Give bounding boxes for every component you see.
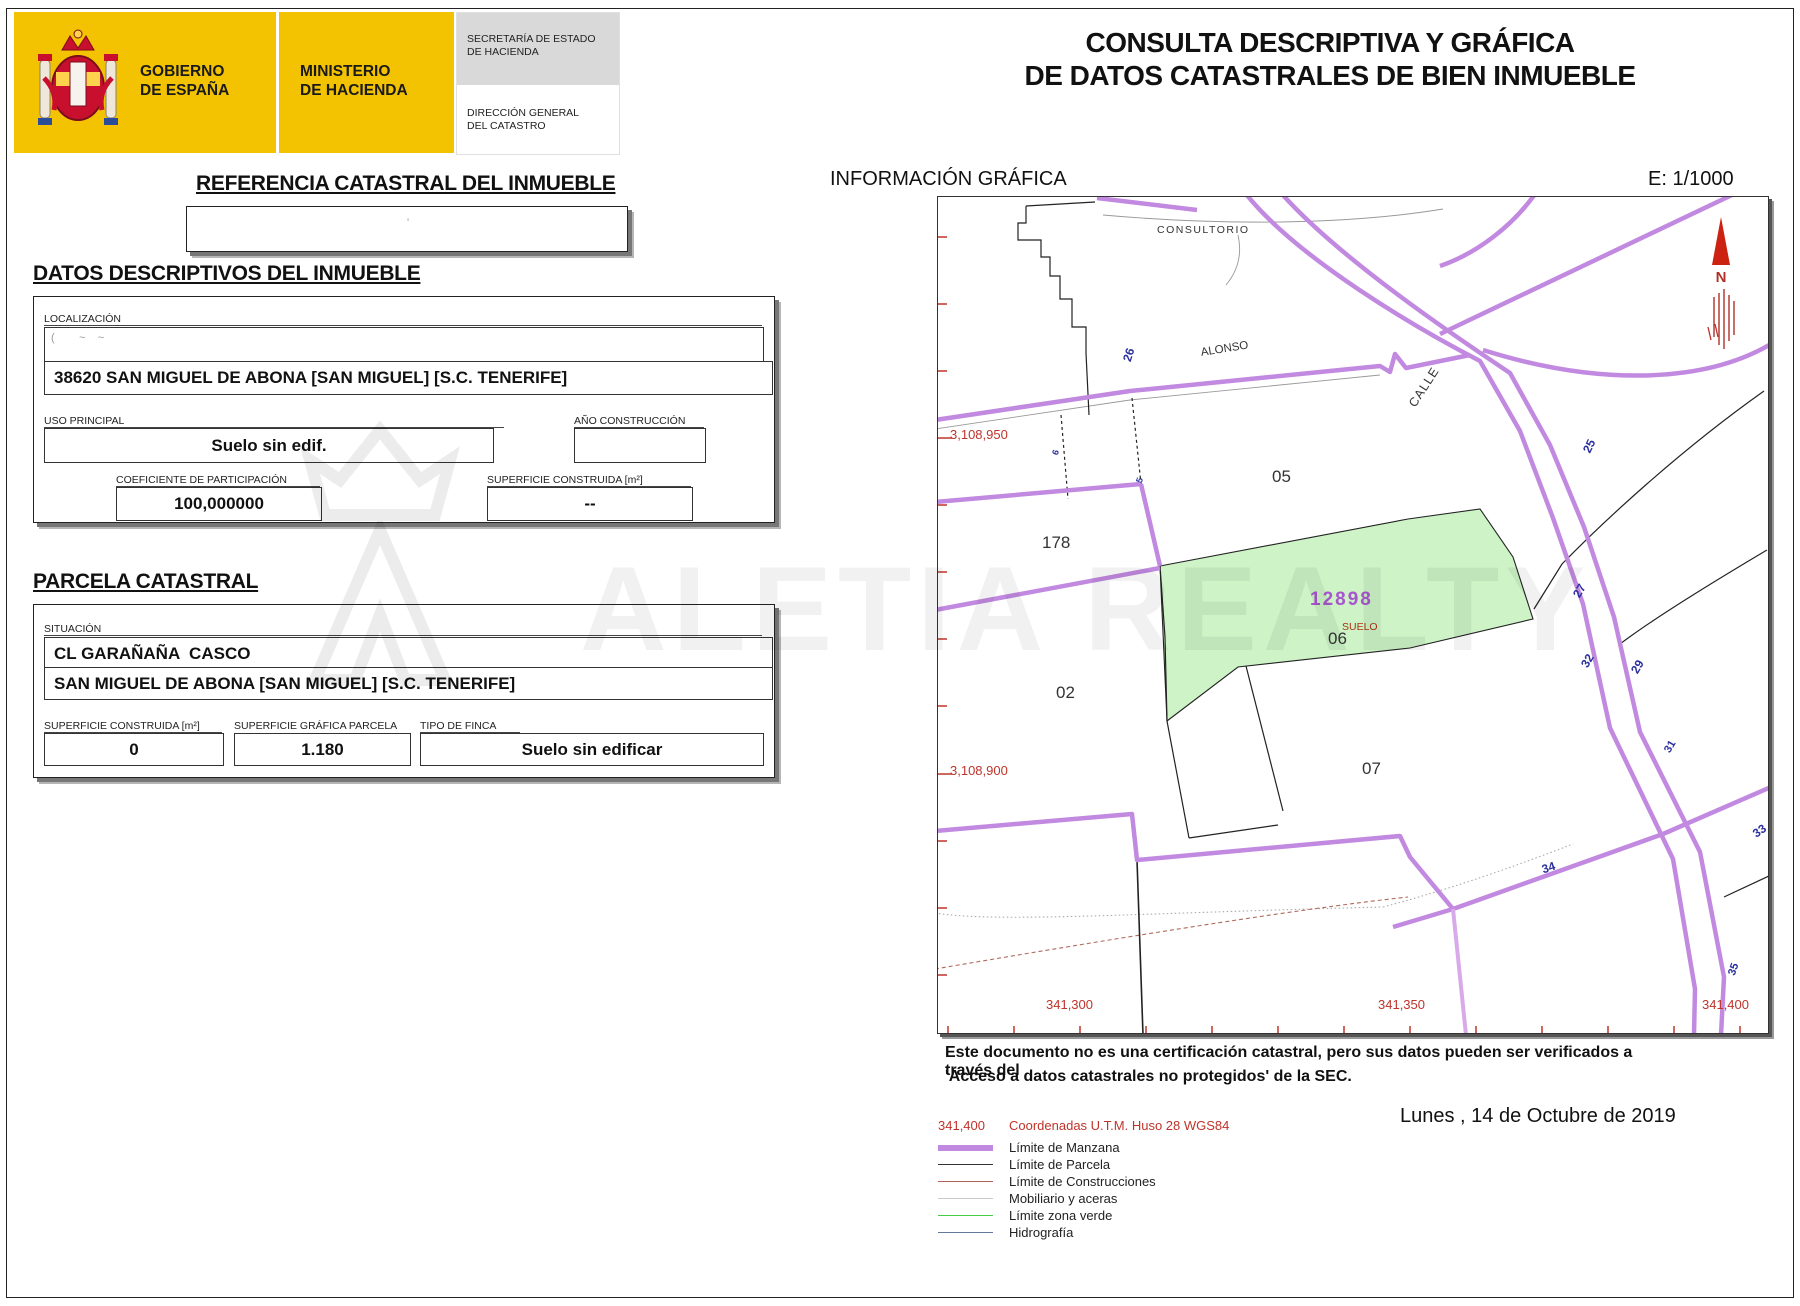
map-scale-label: E: 1/1000: [1648, 168, 1734, 191]
parcela-sup-grafica-value: 1.180: [234, 733, 411, 766]
legend-swatch: [938, 1145, 993, 1151]
ministry-column: SECRETARÍA DE ESTADODE HACIENDA DIRECCIÓ…: [456, 12, 620, 155]
document-date: Lunes , 14 de Octubre de 2019: [1400, 1105, 1676, 1128]
legend-item: Límite de Construcciones: [938, 1174, 1156, 1189]
referencia-heading: REFERENCIA CATASTRAL DEL INMUEBLE: [196, 172, 615, 196]
utm-coord-x1: 341,300: [1046, 997, 1093, 1012]
localizacion-redacted-value: ( ~ ~: [51, 332, 104, 344]
uso-principal-value: Suelo sin edif.: [44, 428, 494, 463]
legend-coord-label: Coordenadas U.T.M. Huso 28 WGS84: [1009, 1118, 1229, 1133]
map-label-consultorio: CONSULTORIO: [1157, 224, 1250, 236]
red-hatch-marks: [1708, 324, 1718, 340]
utm-coord-x2: 341,350: [1378, 997, 1425, 1012]
spain-coat-of-arms-icon: [34, 22, 122, 142]
direccion-label: DIRECCIÓN GENERALDEL CATASTRO: [467, 107, 579, 133]
legend-item: Límite zona verde: [938, 1208, 1112, 1223]
situacion-line1: CL GARAÑAÑA CASCO: [44, 637, 773, 670]
legend-item: Hidrografía: [938, 1225, 1073, 1240]
legend-item-label: Límite zona verde: [1009, 1208, 1112, 1223]
map-subject-parcel-suelo: SUELO: [1342, 621, 1378, 633]
construction-limit-line: [938, 897, 1408, 969]
legend-swatch: [938, 1198, 993, 1199]
parcela-sup-construida-label: SUPERFICIE CONSTRUIDA [m²]: [44, 720, 222, 733]
localizacion-redacted-box: ( ~ ~: [44, 327, 764, 365]
tipo-finca-value: Suelo sin edificar: [420, 733, 764, 766]
minor-purple-line: [1453, 909, 1466, 1033]
legend-item-label: Límite de Construcciones: [1009, 1174, 1156, 1189]
legend-swatch: [938, 1164, 993, 1165]
legend-item-label: Hidrografía: [1009, 1225, 1073, 1240]
datos-box: LOCALIZACIÓN ( ~ ~ 38620 SAN MIGUEL DE A…: [33, 296, 775, 523]
superficie-construida-value: --: [487, 487, 693, 521]
parcela-sup-construida-value: 0: [44, 733, 224, 766]
legend-swatch: [938, 1232, 993, 1233]
subject-parcel-green: [1160, 509, 1533, 721]
uso-principal-label: USO PRINCIPAL: [44, 415, 504, 428]
utm-coord-x3: 341,400: [1702, 997, 1749, 1012]
mobiliario-dotted-lines: [938, 844, 1573, 917]
sidewalk-lines: [938, 209, 1443, 429]
legend-item: Mobiliario y aceras: [938, 1191, 1117, 1206]
legend-item-label: Límite de Manzana: [1009, 1140, 1120, 1155]
ano-construccion-label: AÑO CONSTRUCCIÓN: [574, 415, 704, 428]
map-subject-parcel-ref: 12898: [1310, 589, 1373, 611]
cadastral-map[interactable]: CONSULTORIO ALONSO CALLE 05 178 02 07 12…: [937, 196, 1769, 1034]
gobierno-label: GOBIERNODE ESPAÑA: [140, 62, 229, 100]
north-arrow-letter: N: [1705, 269, 1737, 286]
localizacion-label: LOCALIZACIÓN: [44, 313, 762, 326]
legend-swatch: [938, 1181, 993, 1182]
map-parcel-178: 178: [1042, 533, 1070, 553]
ano-construccion-value: [574, 428, 706, 463]
legend-item: Límite de Manzana: [938, 1140, 1120, 1155]
superficie-construida-label: SUPERFICIE CONSTRUIDA [m²]: [487, 474, 691, 487]
cadastral-document-page: GOBIERNODE ESPAÑA MINISTERIODE HACIENDA …: [0, 0, 1800, 1306]
situacion-label: SITUACIÓN: [44, 623, 762, 636]
datos-heading: DATOS DESCRIPTIVOS DEL INMUEBLE: [33, 262, 420, 286]
coeficiente-value: 100,000000: [116, 487, 322, 521]
informacion-grafica-heading: INFORMACIÓN GRÁFICA: [830, 168, 1067, 191]
header-divider: [276, 12, 279, 153]
utm-ticks-bottom: [948, 1026, 1740, 1033]
utm-coord-y1: 3,108,950: [950, 427, 1008, 442]
map-parcel-02: 02: [1056, 683, 1075, 703]
document-title: CONSULTA DESCRIPTIVA Y GRÁFICA DE DATOS …: [960, 26, 1700, 92]
legend-coordinates-row: 341,400 Coordenadas U.T.M. Huso 28 WGS84: [938, 1118, 1229, 1133]
utm-coord-y2: 3,108,900: [950, 763, 1008, 778]
parcela-box: SITUACIÓN CL GARAÑAÑA CASCO SAN MIGUEL D…: [33, 604, 775, 778]
ministerio-label: MINISTERIODE HACIENDA: [300, 62, 408, 100]
legend-swatch: [938, 1215, 993, 1216]
map-parcel-07: 07: [1362, 759, 1381, 779]
cadastral-map-drawing: [938, 197, 1768, 1033]
disclaimer-line2: 'Acceso a datos catastrales no protegido…: [945, 1068, 1645, 1086]
referencia-redacted-value: ': [407, 217, 409, 229]
map-subject-parcel-06: 06: [1328, 629, 1347, 649]
legend-item: Límite de Parcela: [938, 1157, 1110, 1172]
coeficiente-label: COEFICIENTE DE PARTICIPACIÓN: [116, 474, 320, 487]
legend-coord-sample: 341,400: [938, 1118, 993, 1133]
map-parcel-05: 05: [1272, 467, 1291, 487]
referencia-value-box: ': [186, 206, 628, 252]
situacion-line2: SAN MIGUEL DE ABONA [SAN MIGUEL] [S.C. T…: [44, 667, 773, 700]
secretaria-label: SECRETARÍA DE ESTADODE HACIENDA: [467, 33, 596, 59]
parcela-heading: PARCELA CATASTRAL: [33, 570, 258, 594]
localizacion-municipio-value: 38620 SAN MIGUEL DE ABONA [SAN MIGUEL] […: [44, 361, 773, 395]
tipo-finca-label: TIPO DE FINCA: [420, 720, 520, 733]
legend-item-label: Límite de Parcela: [1009, 1157, 1110, 1172]
legend-item-label: Mobiliario y aceras: [1009, 1191, 1117, 1206]
